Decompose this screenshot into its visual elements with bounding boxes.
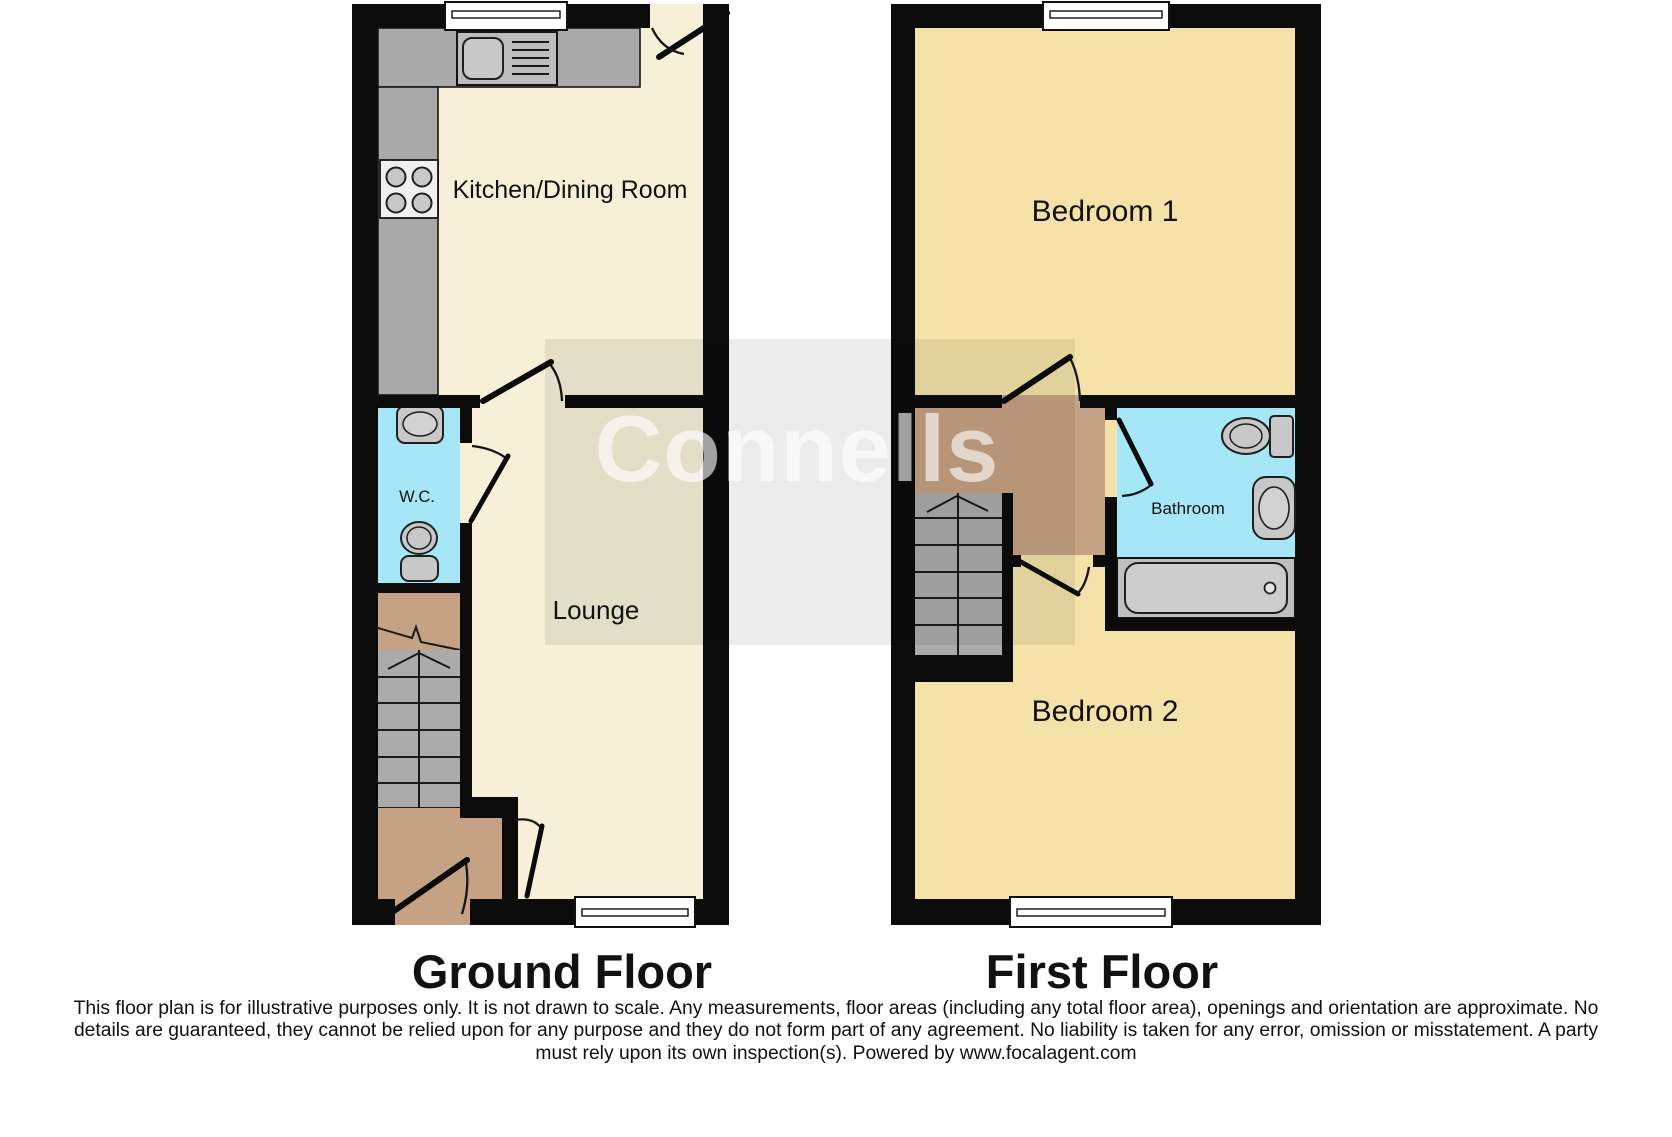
wall	[1093, 555, 1105, 567]
hob-ring	[413, 168, 432, 187]
wall	[1105, 618, 1295, 631]
window-icon	[575, 897, 695, 927]
room-label-lounge: Lounge	[553, 595, 640, 625]
wall	[460, 408, 472, 443]
watermark-logo-text: Connells	[595, 396, 1000, 501]
window-icon	[1043, 2, 1169, 30]
wall	[460, 523, 472, 583]
room-label-bathroom: Bathroom	[1151, 499, 1225, 518]
hall-floor	[378, 808, 502, 899]
hob-icon	[380, 160, 438, 218]
hob-ring	[387, 194, 406, 213]
disclaimer-text: This floor plan is for illustrative purp…	[74, 998, 1599, 1064]
hob-ring	[413, 194, 432, 213]
window-glazing	[582, 909, 688, 916]
wall	[502, 818, 518, 899]
bath-tub	[1125, 563, 1287, 613]
floorplan-page: Connells Kitchen/Dining Room W.C. Lounge…	[0, 0, 1672, 1137]
disclaimer-line-3: must rely upon its own inspection(s). Po…	[535, 1043, 1136, 1064]
room-label-bedroom2: Bedroom 2	[1032, 695, 1179, 728]
room-label-kitchen: Kitchen/Dining Room	[453, 176, 688, 204]
wall	[378, 583, 472, 593]
wall	[460, 593, 472, 797]
door-opening	[650, 4, 703, 28]
toilet-icon	[1222, 416, 1293, 457]
wall	[1105, 408, 1117, 420]
basin-icon	[1253, 477, 1295, 539]
wall	[1295, 4, 1321, 925]
room-label-bedroom1: Bedroom 1	[1032, 195, 1179, 228]
wall	[352, 4, 378, 925]
floorplan-drawing: Connells Kitchen/Dining Room W.C. Lounge…	[0, 0, 1672, 1137]
bath-icon	[1117, 558, 1295, 618]
basin-icon	[397, 406, 443, 443]
ground-floor-title: Ground Floor	[412, 945, 712, 998]
wall	[460, 797, 518, 818]
hob-ring	[387, 168, 406, 187]
window-glazing	[1050, 11, 1162, 18]
bath-tap	[1265, 583, 1276, 594]
toilet-cistern	[401, 556, 438, 581]
disclaimer-line-2: details are guaranteed, they cannot be r…	[74, 1020, 1598, 1041]
window-glazing	[1017, 909, 1165, 916]
disclaimer-line-1: This floor plan is for illustrative purp…	[74, 998, 1599, 1019]
wall	[1105, 497, 1117, 631]
sink-bowl	[463, 38, 503, 79]
stairs-icon	[378, 593, 460, 808]
first-floor-title: First Floor	[986, 945, 1218, 998]
room-label-wc: W.C.	[399, 488, 435, 506]
stair-landing	[378, 593, 460, 650]
wall	[1080, 395, 1295, 408]
wall	[915, 655, 1013, 682]
wall	[378, 395, 480, 408]
window-glazing	[452, 11, 560, 18]
window-icon	[445, 2, 567, 30]
toilet-cistern	[1270, 416, 1293, 457]
sink-icon	[457, 32, 557, 85]
window-icon	[1010, 897, 1172, 927]
floor-titles: Ground Floor First Floor	[412, 945, 1218, 998]
counter-left	[378, 87, 438, 395]
